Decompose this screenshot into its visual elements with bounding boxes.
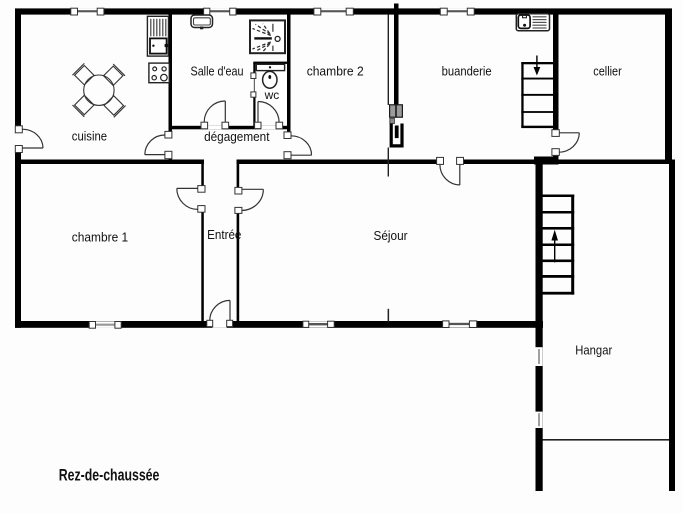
svg-text:cuisine: cuisine: [72, 129, 107, 144]
svg-text:Entrée: Entrée: [207, 227, 241, 242]
svg-text:Rez-de-chaussée: Rez-de-chaussée: [59, 466, 160, 485]
svg-text:Séjour: Séjour: [374, 228, 409, 243]
svg-text:dégagement: dégagement: [204, 129, 270, 144]
svg-text:Hangar: Hangar: [575, 343, 612, 358]
svg-text:chambre 2: chambre 2: [307, 64, 364, 79]
svg-text:chambre 1: chambre 1: [72, 229, 128, 244]
svg-text:buanderie: buanderie: [442, 63, 492, 78]
svg-text:cellier: cellier: [593, 63, 622, 78]
svg-text:wc: wc: [264, 88, 280, 102]
svg-text:Salle d'eau: Salle d'eau: [191, 63, 244, 78]
